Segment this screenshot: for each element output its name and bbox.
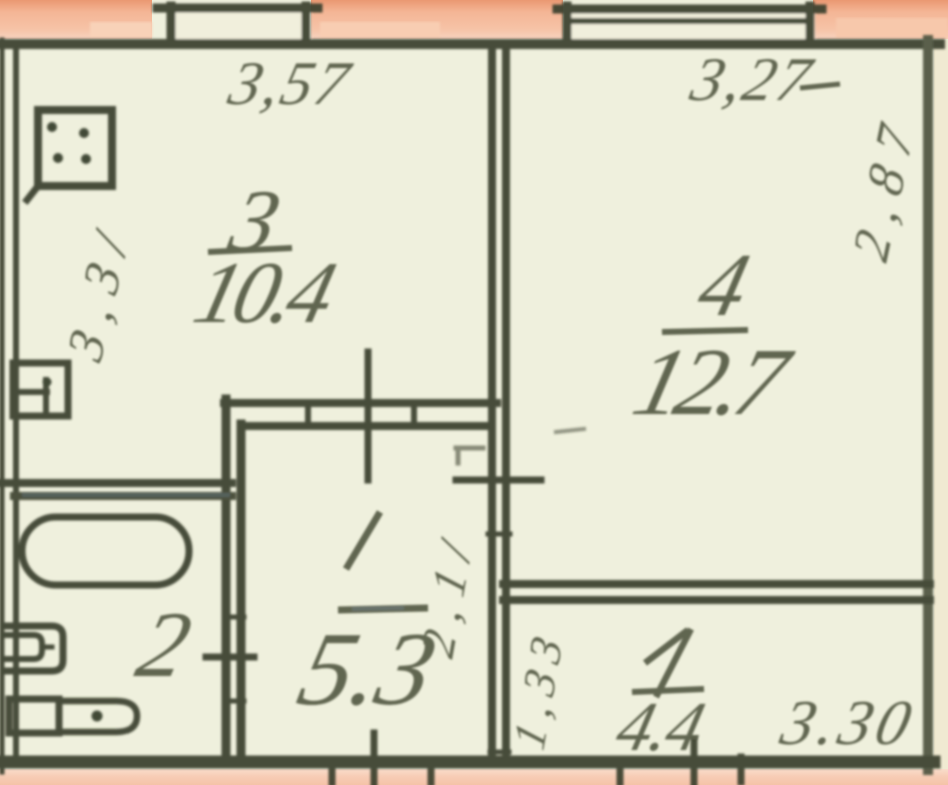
svg-text:10.4: 10.4 xyxy=(185,244,345,341)
svg-text:3,27: 3,27 xyxy=(684,45,821,114)
svg-text:3,57: 3,57 xyxy=(222,49,359,118)
svg-text:12.7: 12.7 xyxy=(624,329,803,435)
